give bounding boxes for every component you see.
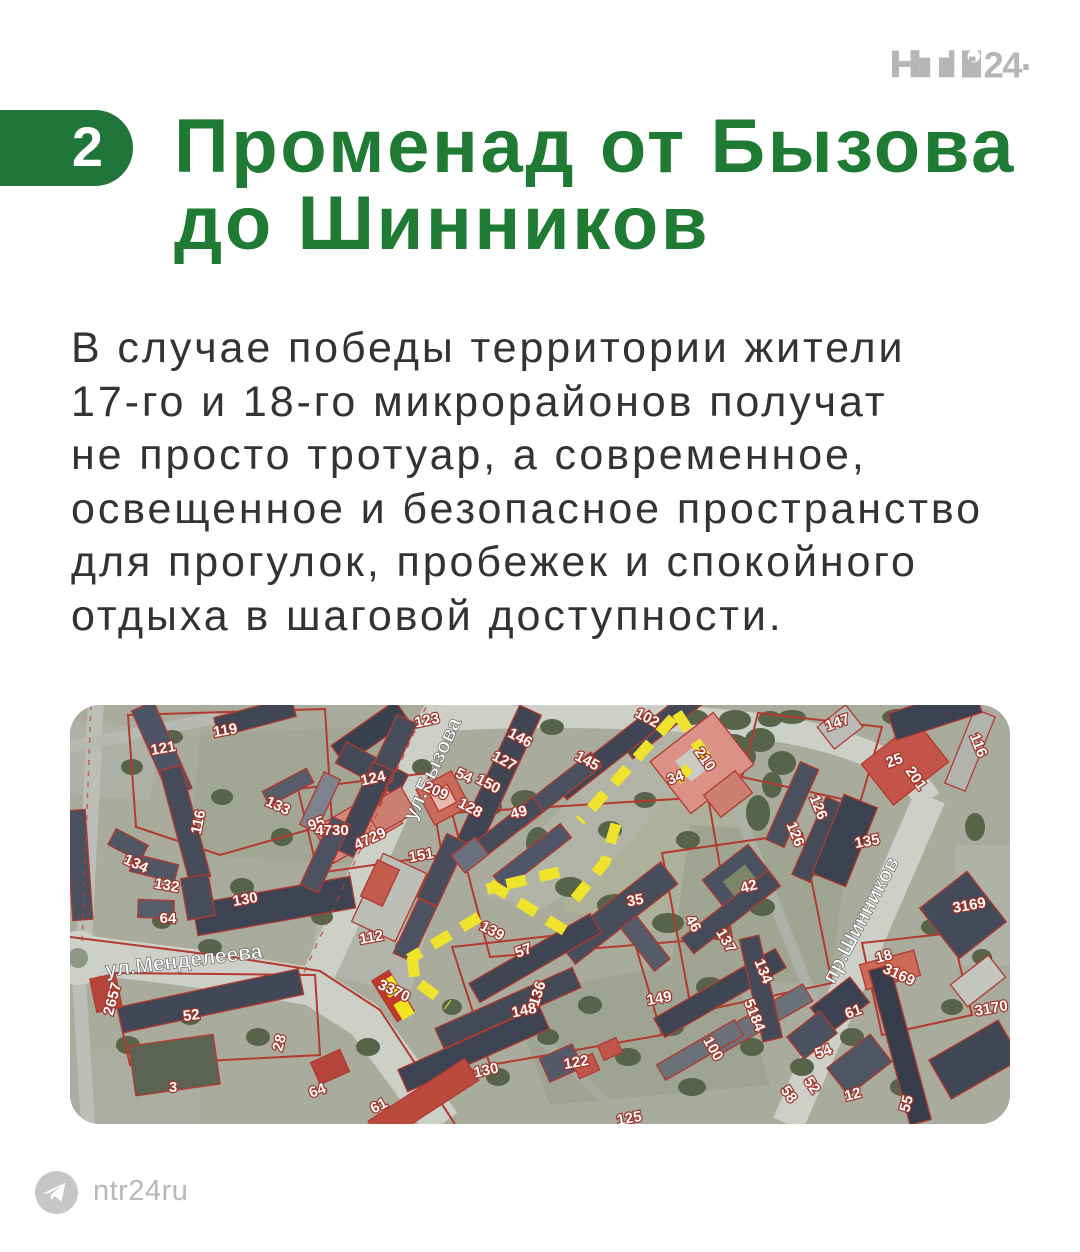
svg-text:24: 24: [984, 44, 1024, 82]
svg-text:52: 52: [182, 1006, 201, 1025]
svg-text:4730: 4730: [315, 822, 348, 839]
svg-text:3: 3: [169, 1079, 177, 1096]
svg-text:64: 64: [160, 910, 177, 927]
svg-text:35: 35: [626, 891, 645, 911]
